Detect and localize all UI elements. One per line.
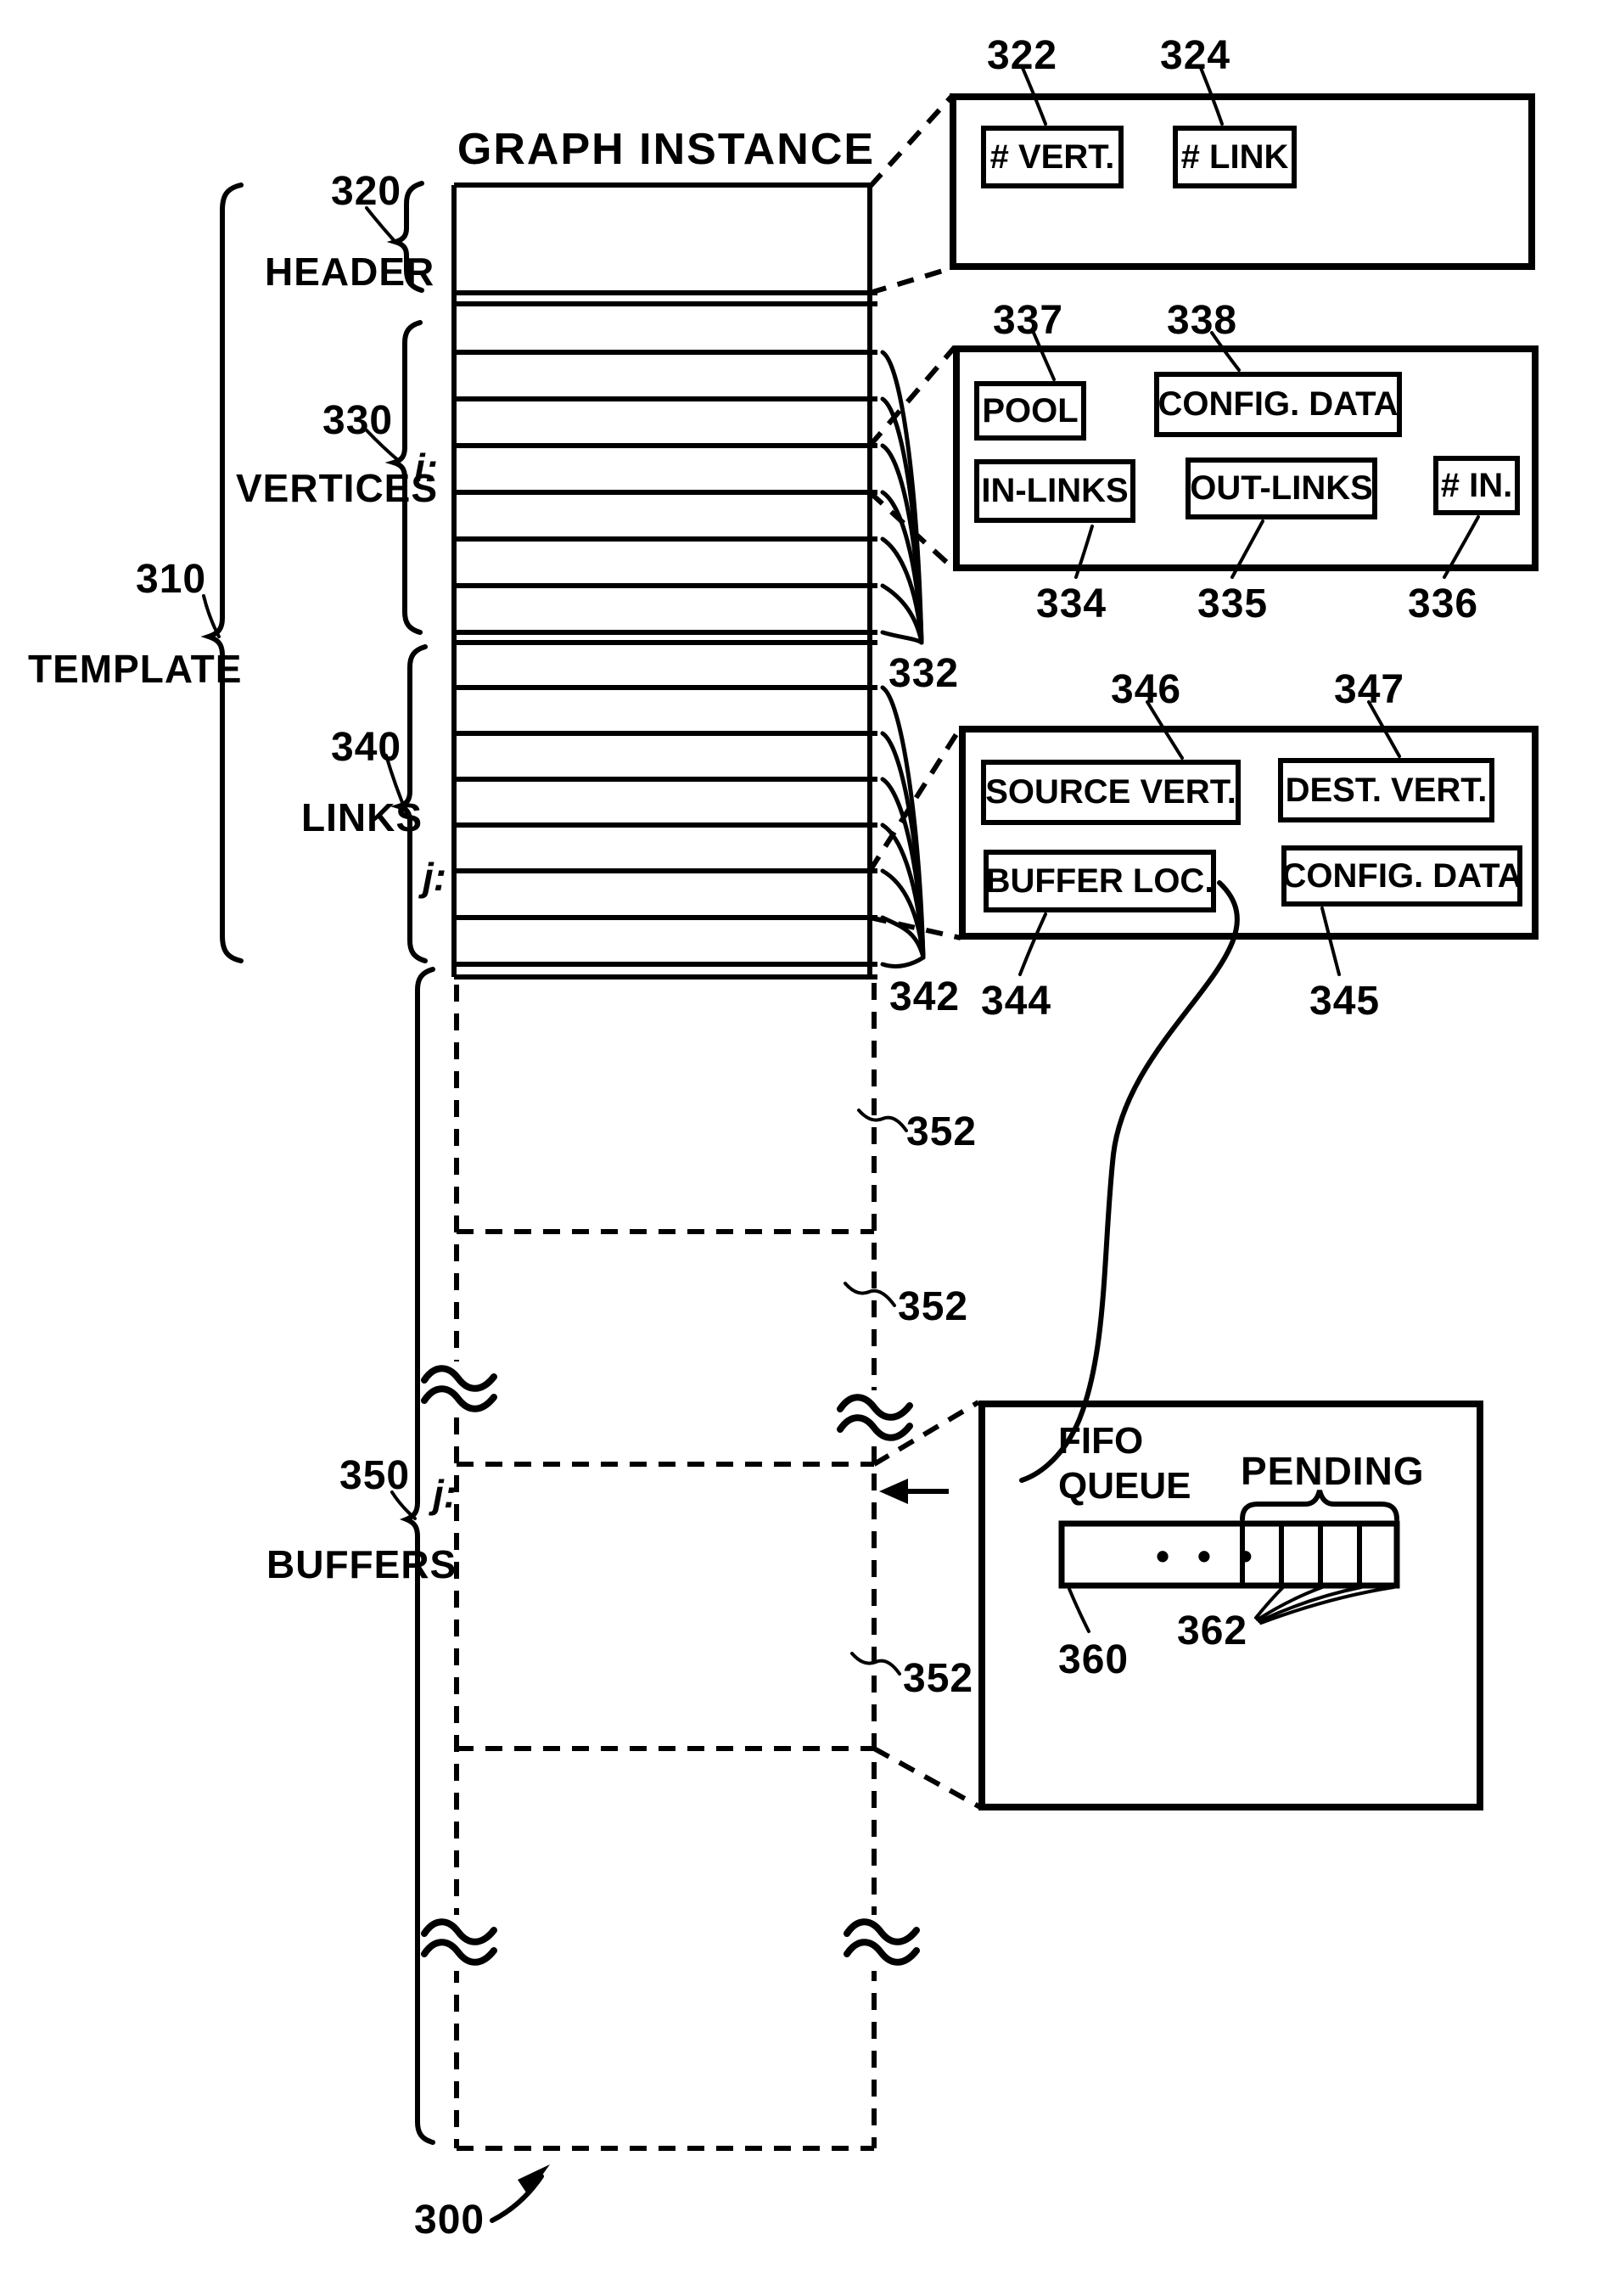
- pending-brace: [1242, 1490, 1397, 1519]
- field-link-config-data-label: CONFIG. DATA: [1282, 857, 1522, 895]
- ref-344: 344: [981, 978, 1051, 1024]
- fifo-projection-top: [874, 1402, 978, 1464]
- ref-335: 335: [1197, 581, 1268, 627]
- field-out-links: OUT-LINKS: [1186, 458, 1377, 519]
- field-dest-vert: DEST. VERT.: [1278, 758, 1494, 822]
- buffers-dashed-column: [457, 983, 874, 2148]
- ref-324: 324: [1160, 32, 1230, 79]
- queue-ellipsis: • • •: [1156, 1533, 1261, 1579]
- pending-label: PENDING: [1241, 1448, 1425, 1494]
- link-index-label: j:: [423, 854, 446, 900]
- ref-330: 330: [322, 397, 393, 444]
- section-label-links: LINKS: [301, 794, 423, 840]
- break-squiggles: [424, 1361, 917, 1971]
- ref-310: 310: [136, 556, 206, 603]
- leader-336: [1444, 517, 1478, 577]
- buffer-index-label: j:: [433, 1471, 457, 1517]
- leader-352-1: [859, 1110, 906, 1131]
- pending-fan-curves: [1256, 1587, 1393, 1623]
- field-pool: POOL: [974, 381, 1086, 441]
- header-projection-top: [870, 97, 951, 187]
- buffer-loc-to-fifo-curve: [1022, 883, 1237, 1480]
- ref-338: 338: [1167, 297, 1237, 344]
- field-num-vert-label: # VERT.: [990, 138, 1115, 177]
- fifo-projection-bottom: [874, 1749, 980, 1807]
- field-num-link-label: # LINK: [1181, 138, 1289, 177]
- buffer-cell-arrow: [879, 1479, 949, 1504]
- ref-342: 342: [889, 974, 960, 1020]
- leader-344: [1020, 914, 1045, 974]
- field-in-links-label: IN-LINKS: [981, 472, 1128, 510]
- field-dest-vert-label: DEST. VERT.: [1286, 772, 1488, 810]
- section-label-buffers: BUFFERS: [266, 1541, 457, 1587]
- field-out-links-label: OUT-LINKS: [1190, 469, 1373, 508]
- leader-335: [1232, 521, 1263, 577]
- section-label-header: HEADER: [265, 249, 434, 295]
- ref-352-3: 352: [903, 1655, 973, 1702]
- link-row-lines: [454, 688, 877, 918]
- graph-instance-column: [454, 185, 877, 977]
- ref-352-2: 352: [898, 1283, 968, 1330]
- ref-320: 320: [331, 168, 401, 215]
- template-label: TEMPLATE: [28, 646, 242, 692]
- section-label-vertices: VERTICES: [236, 465, 438, 511]
- leader-334: [1076, 526, 1092, 577]
- field-link-config-data: CONFIG. DATA: [1281, 845, 1522, 907]
- field-buffer-loc: BUFFER LOC.: [984, 850, 1216, 912]
- ref-362: 362: [1177, 1608, 1247, 1654]
- ref-360: 360: [1058, 1636, 1129, 1683]
- field-source-vert: SOURCE VERT.: [981, 760, 1241, 825]
- patent-figure-canvas: # VERT. # LINK POOL CONFIG. DATA IN-LINK…: [0, 0, 1620, 2296]
- field-vertex-config-data-label: CONFIG. DATA: [1158, 385, 1399, 424]
- field-in-links: IN-LINKS: [974, 459, 1135, 523]
- figure-linework: [0, 0, 1620, 2296]
- figure-title: GRAPH INSTANCE: [454, 124, 878, 175]
- ref-345: 345: [1309, 978, 1380, 1024]
- ref-352-1: 352: [906, 1109, 977, 1155]
- ref-350: 350: [339, 1452, 410, 1499]
- template-brace: [209, 185, 241, 961]
- ref-346: 346: [1111, 666, 1181, 713]
- field-num-in-label: # IN.: [1441, 467, 1512, 505]
- field-vertex-config-data: CONFIG. DATA: [1154, 372, 1402, 437]
- leader-345: [1322, 908, 1339, 974]
- fifo-queue-label: FIFO QUEUE: [1058, 1419, 1202, 1509]
- field-pool-label: POOL: [982, 392, 1078, 430]
- field-num-in: # IN.: [1433, 456, 1520, 515]
- ref-347: 347: [1334, 666, 1404, 713]
- vertex-row-lines: [454, 352, 877, 586]
- vertex-index-label: i:: [414, 445, 438, 491]
- ref-332: 332: [888, 650, 959, 697]
- header-projection-bottom: [870, 268, 951, 293]
- ref-336: 336: [1408, 581, 1478, 627]
- ref-334: 334: [1036, 581, 1107, 627]
- field-buffer-loc-label: BUFFER LOC.: [986, 862, 1214, 901]
- ref-300: 300: [414, 2197, 485, 2243]
- leader-352-2: [845, 1283, 894, 1305]
- vertex-projection-top: [870, 347, 955, 446]
- ref-337: 337: [993, 297, 1063, 344]
- ref-340: 340: [331, 724, 401, 771]
- field-num-vert: # VERT.: [981, 126, 1124, 188]
- ref-322: 322: [987, 32, 1057, 79]
- field-source-vert-label: SOURCE VERT.: [985, 773, 1236, 811]
- leader-360: [1069, 1589, 1089, 1631]
- field-num-link: # LINK: [1173, 126, 1297, 188]
- figure-ref-arrow: [492, 2164, 550, 2220]
